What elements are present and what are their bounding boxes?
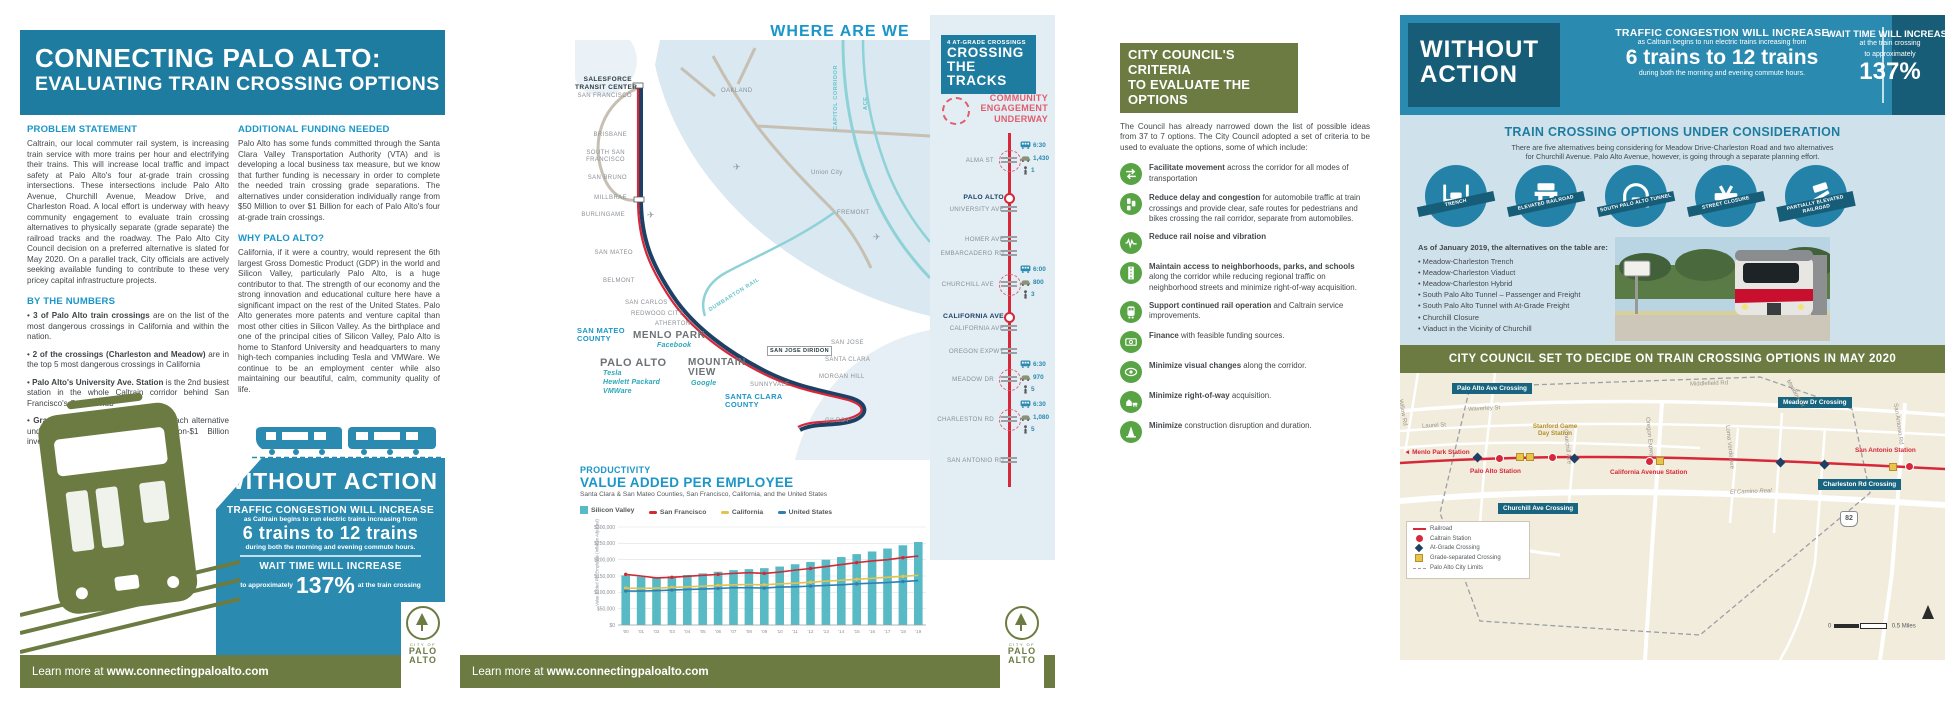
highway-82-shield: 82 xyxy=(1840,511,1858,527)
crossing-oregon-expwy: OREGON EXPWY xyxy=(934,348,1004,355)
city-logo: CITY OF PALO ALTO xyxy=(1000,602,1044,692)
svg-text:'00: '00 xyxy=(623,629,629,634)
map-label-facebook: Facebook xyxy=(657,342,691,349)
alternatives-intro: As of January 2019, the alternatives on … xyxy=(1418,243,1618,252)
separated-marker xyxy=(1526,453,1534,461)
airport-icon: ✈ xyxy=(873,232,881,243)
chart-ylabel: Value Added Per Employee (Inflation Adju… xyxy=(595,508,600,618)
svg-text:'16: '16 xyxy=(869,629,875,634)
option-partially-elevated-railroad: PARTIALLY ELEVATED RAILROAD xyxy=(1785,165,1847,227)
at-grade-circle xyxy=(999,409,1021,431)
alternative-item: South Palo Alto Tunnel with At-Grade Fre… xyxy=(1418,300,1618,311)
chart-legend: Silicon Valley San Francisco California … xyxy=(580,501,932,519)
criteria-item: Finance with feasible funding sources. xyxy=(1120,331,1378,353)
car-icon xyxy=(1020,279,1031,286)
separated-marker xyxy=(1001,457,1017,463)
train-icon xyxy=(1020,141,1031,149)
station-marker xyxy=(1004,312,1015,323)
criteria-item: Minimize visual changes along the corrid… xyxy=(1120,361,1378,383)
map-label-san-carlos: SAN CARLOS xyxy=(625,300,668,306)
criteria-item: Maintain access to neighborhoods, parks,… xyxy=(1120,262,1378,293)
map-label-south-sf: SOUTH SAN xyxy=(575,150,625,156)
option-trench: TRENCH xyxy=(1425,165,1487,227)
traffic-icon xyxy=(1120,193,1142,215)
svg-text:'13: '13 xyxy=(823,629,829,634)
page-middle: WHERE ARE WE Caltrain BART High Speed Ra… xyxy=(460,15,1055,688)
north-arrow-icon xyxy=(1922,605,1934,619)
map-label-capitol-corridor: CAPITOL CORRIDOR xyxy=(833,65,839,130)
wait-percentage: 137% xyxy=(296,572,355,599)
palo-alto-ave-crossing-label: Palo Alto Ave Crossing xyxy=(1452,383,1532,394)
svg-text:'04: '04 xyxy=(684,629,690,634)
at-grade-circle xyxy=(999,369,1021,391)
noise-icon xyxy=(1120,232,1142,254)
page-right: CITY COUNCIL'S CRITERIA TO EVALUATE THE … xyxy=(1075,15,1945,688)
separated-marker xyxy=(1001,206,1017,212)
separated-marker xyxy=(1001,348,1017,354)
stat-peds: 5 xyxy=(1022,385,1035,394)
footer-bar: Learn more at www.connectingpaloalto.com xyxy=(460,655,1055,688)
right-of-way-icon xyxy=(1120,391,1142,413)
legend-at-grade: At-Grade Crossing xyxy=(1412,545,1524,551)
stat-time: 6:30 xyxy=(1020,141,1046,149)
stat-time: 6:30 xyxy=(1020,400,1046,408)
svg-text:'03: '03 xyxy=(669,629,675,634)
criteria-header: CITY COUNCIL'S CRITERIA TO EVALUATE THE … xyxy=(1120,43,1298,113)
chart-legend-san-francisco: San Francisco xyxy=(649,509,706,516)
crossing-homer-ave: HOMER AVE xyxy=(934,236,1004,243)
svg-text:'08: '08 xyxy=(746,629,752,634)
alternative-item: Viaduct in the Vicinity of Churchill xyxy=(1418,323,1618,334)
map-label-hewlett-packard: Hewlett Packard xyxy=(603,379,660,386)
map-legend: Railroad Caltrain Station At-Grade Cross… xyxy=(1406,521,1530,579)
by-the-numbers-heading: BY THE NUMBERS xyxy=(27,296,229,307)
without-action-box: WITHOUT ACTION xyxy=(1408,23,1560,107)
map-label-union-city: Union City xyxy=(811,170,843,176)
map-label-menlo-park: MENLO PARK xyxy=(633,330,705,341)
chart-legend-california: California xyxy=(721,509,763,516)
page-left: CONNECTING PALO ALTO: EVALUATING TRAIN C… xyxy=(20,30,445,688)
option-elevated-railroad: ELEVATED RAILROAD xyxy=(1515,165,1577,227)
map-label-palo-alto: PALO ALTO xyxy=(600,357,667,369)
numbers-bullet: 2 of the crossings (Charleston and Meado… xyxy=(27,350,229,371)
stat-peds: 5 xyxy=(1022,425,1035,434)
svg-text:'07: '07 xyxy=(731,629,737,634)
bay-area-map: ✈ ✈ ✈ SALESFORCE TRANSIT CENTER SAN FRAN… xyxy=(575,40,930,460)
svg-text:'12: '12 xyxy=(808,629,814,634)
separated-marker xyxy=(1656,457,1664,465)
map-label-brisbane: BRISBANE xyxy=(575,132,627,138)
rail-line xyxy=(1008,133,1011,487)
train-icon xyxy=(1020,265,1031,273)
option-street-closure: STREET CLOSURE xyxy=(1695,165,1757,227)
divider xyxy=(240,499,421,501)
map-label-san-jose: SAN JOSE xyxy=(831,340,864,346)
svg-text:'10: '10 xyxy=(777,629,783,634)
crossing-meadow-dr: MEADOW DR xyxy=(934,376,994,383)
pedestrian-icon xyxy=(1022,166,1029,175)
car-icon xyxy=(1020,155,1031,162)
map-label-millbrae: MILLBRAE xyxy=(575,195,627,201)
separated-marker xyxy=(1889,463,1897,471)
options-section: TRAIN CROSSING OPTIONS UNDER CONSIDERATI… xyxy=(1400,115,1945,345)
svg-text:'14: '14 xyxy=(838,629,844,634)
map-label-san-bruno: SAN BRUNO xyxy=(575,175,627,181)
legend-grade-separated: Grade-separated Crossing xyxy=(1412,554,1524,562)
criteria-item: Reduce delay and congestion for automobi… xyxy=(1120,193,1378,224)
svg-text:$50,000: $50,000 xyxy=(597,606,615,612)
without-action-band: WITHOUT ACTION TRAFFIC CONGESTION WILL I… xyxy=(1400,15,1945,115)
page-subtitle: EVALUATING TRAIN CROSSING OPTIONS xyxy=(35,73,445,96)
alternative-item: Meadow-Charleston Viaduct xyxy=(1418,267,1618,278)
map-label-google: Google xyxy=(691,380,716,387)
caltrain-photo xyxy=(1615,237,1830,341)
map-label-vmware: VMWare xyxy=(603,388,632,395)
alternative-item: South Palo Alto Tunnel – Passenger and F… xyxy=(1418,289,1618,300)
decision-banner: CITY COUNCIL SET TO DECIDE ON TRAIN CROS… xyxy=(1400,345,1945,373)
crossing-tracks-panel: 4 AT-GRADE CROSSINGS CROSSING THE TRACKS… xyxy=(930,15,1055,560)
car-icon xyxy=(1020,414,1031,421)
legend-railroad: Railroad xyxy=(1412,526,1524,532)
city-logo: CITY OF PALO ALTO xyxy=(401,602,445,692)
wait-pre: to approximately xyxy=(240,582,293,589)
svg-text:'05: '05 xyxy=(700,629,706,634)
wait-post: at the train crossing xyxy=(358,582,421,589)
additional-funding-heading: ADDITIONAL FUNDING NEEDED xyxy=(238,124,440,135)
stat-cars: 970 xyxy=(1020,374,1044,381)
airport-icon: ✈ xyxy=(733,162,741,173)
title-banner: CONNECTING PALO ALTO: EVALUATING TRAIN C… xyxy=(20,30,445,115)
chart-title: VALUE ADDED PER EMPLOYEE xyxy=(580,475,932,490)
criteria-item: Reduce rail noise and vibration xyxy=(1120,232,1378,254)
street-laurel: Laurel St xyxy=(1422,422,1446,429)
svg-text:'15: '15 xyxy=(854,629,860,634)
map-label-san-francisco: SAN FRANCISCO xyxy=(575,93,632,99)
criteria-item: Minimize construction disruption and dur… xyxy=(1120,421,1378,443)
station-marker-palo-alto xyxy=(1495,454,1504,463)
map-label-santa-clara: SANTA CLARA xyxy=(825,357,870,363)
criteria-intro: The Council has already narrowed down th… xyxy=(1120,122,1370,154)
why-palo-alto-heading: WHY PALO ALTO? xyxy=(238,233,440,244)
construction-icon xyxy=(1120,421,1142,443)
pedestrian-icon xyxy=(1022,425,1029,434)
rail-icon xyxy=(1120,301,1142,323)
station-palo-alto: PALO ALTO xyxy=(934,194,1004,201)
pedestrian-icon xyxy=(1022,385,1029,394)
palo-alto-station-label: Palo Alto Station xyxy=(1470,468,1521,475)
option-south-palo-alto-tunnel: SOUTH PALO ALTO TUNNEL xyxy=(1605,165,1667,227)
alternative-item: Meadow-Charleston Hybrid xyxy=(1418,278,1618,289)
stat-peds: 3 xyxy=(1022,290,1035,299)
separated-marker xyxy=(1001,325,1017,331)
crossing-california-ave: CALIFORNIA AVE xyxy=(934,325,1004,332)
train-icon xyxy=(252,423,442,459)
crossings-map: Palo Alto Ave Crossing Churchill Ave Cro… xyxy=(1400,373,1945,660)
chart-legend-silicon-valley: Silicon Valley xyxy=(580,506,634,514)
road-icon xyxy=(1120,262,1142,284)
without-action-title: WITHOUT ACTION xyxy=(216,468,445,495)
map-label-salesforce2: TRANSIT CENTER xyxy=(575,84,632,91)
train-icon xyxy=(1020,360,1031,368)
criteria-item: Support continued rail operation and Cal… xyxy=(1120,301,1378,323)
svg-text:'19: '19 xyxy=(915,629,921,634)
svg-text:'01: '01 xyxy=(638,629,644,634)
city-logo-icon xyxy=(406,606,440,640)
station-california-ave: CALIFORNIA AVE xyxy=(934,313,1004,320)
stat-time: 6:00 xyxy=(1020,265,1046,273)
separated-marker xyxy=(1001,250,1017,256)
eye-icon xyxy=(1120,361,1142,383)
map-label-san-jose-diridon: SAN JOSE DIRIDON xyxy=(767,346,832,356)
map-label-oakland: OAKLAND xyxy=(721,88,752,94)
chart-plot: $0$50,000$100,000$150,000$200,000$250,00… xyxy=(580,521,930,647)
at-grade-circle xyxy=(999,274,1021,296)
map-label-belmont: BELMONT xyxy=(603,278,635,284)
map-title: WHERE ARE WE xyxy=(760,23,920,41)
movement-icon xyxy=(1120,163,1142,185)
city-logo-icon xyxy=(1005,606,1039,640)
legend-city-limits: Palo Alto City Limits xyxy=(1412,565,1524,571)
wait-heading: WAIT TIME WILL INCREASE xyxy=(216,561,445,572)
footer-text: Learn more at www.connectingpaloalto.com xyxy=(460,666,709,678)
map-label-mountain-view2: VIEW xyxy=(688,367,716,378)
crossing-embarcadero-rd: EMBARCADERO RD xyxy=(934,250,1004,257)
station-marker-san-antonio xyxy=(1905,462,1914,471)
map-label-san-mateo-county2: COUNTY xyxy=(577,334,611,343)
map-label-morgan-hill: MORGAN HILL xyxy=(819,374,865,380)
svg-text:'06: '06 xyxy=(715,629,721,634)
separated-marker xyxy=(1001,236,1017,242)
menlo-park-station-label: ◄ Menlo Park Station xyxy=(1404,449,1470,456)
at-grade-circle xyxy=(999,150,1021,172)
station-marker-stanford xyxy=(1548,453,1557,462)
map-label-redwood-city: REDWOOD CITY xyxy=(631,311,683,317)
airport-icon: ✈ xyxy=(647,210,655,221)
station-marker xyxy=(1004,193,1015,204)
trains-stat: 6 trains to 12 trains xyxy=(216,523,445,544)
crossing-san-antonio-rd: SAN ANTONIO RD xyxy=(934,457,1004,464)
stanford-station-label: Stanford GameDay Station xyxy=(1520,423,1590,437)
svg-text:'18: '18 xyxy=(900,629,906,634)
divider xyxy=(240,555,421,557)
map-label-sunnyvale: SUNNYVALE xyxy=(750,382,790,388)
scale-bar: 0 0.5 Miles xyxy=(1828,623,1916,630)
svg-text:'02: '02 xyxy=(654,629,660,634)
map-label-santa-clara-county2: COUNTY xyxy=(725,400,759,409)
criteria-item: Facilitate movement across the corridor … xyxy=(1120,163,1378,185)
map-label-burlingame: BURLINGAME xyxy=(575,212,625,218)
california-ave-station-label: California Avenue Station xyxy=(1610,469,1687,476)
website-link[interactable]: www.connectingpaloalto.com xyxy=(107,666,269,678)
map-label-san-mateo: SAN MATEO xyxy=(575,250,633,256)
additional-funding-body: Palo Alto has some funds committed throu… xyxy=(238,139,440,223)
stat-cars: 1,430 xyxy=(1020,155,1049,162)
page-title: CONNECTING PALO ALTO: xyxy=(35,44,445,73)
wait-percentage: 137% xyxy=(1820,58,1956,86)
stat-cars: 800 xyxy=(1020,279,1044,286)
chart-subtitle: Santa Clara & San Mateo Counties, San Fr… xyxy=(580,491,932,498)
train-icon xyxy=(1020,400,1031,408)
chart-legend-united-states: United States xyxy=(778,509,832,516)
svg-text:$0: $0 xyxy=(609,623,615,629)
station-marker-california-ave xyxy=(1645,457,1654,466)
legend-caltrain-station: Caltrain Station xyxy=(1412,535,1524,542)
charleston-rd-crossing-label: Charleston Rd Crossing xyxy=(1818,479,1901,490)
map-label-gilroy: GILROY xyxy=(825,418,850,424)
car-icon xyxy=(1020,374,1031,381)
options-heading: TRAIN CROSSING OPTIONS UNDER CONSIDERATI… xyxy=(1400,125,1945,139)
stat-cars: 1,080 xyxy=(1020,414,1049,421)
community-engagement-label: COMMUNITY ENGAGEMENT UNDERWAY xyxy=(960,93,1048,124)
finance-icon xyxy=(1120,331,1142,353)
san-antonio-station-label: San Antonio Station xyxy=(1855,447,1916,454)
map-label-atherton: ATHERTON xyxy=(655,321,691,327)
wait-block: WAIT TIME WILL INCREASE at the train cro… xyxy=(1820,29,1956,86)
map-label-tesla: Tesla xyxy=(603,370,622,377)
commute-sub: during both the morning and evening comm… xyxy=(216,544,445,551)
crossing-university-ave: UNIVERSITY AVE xyxy=(934,206,1004,213)
map-label-ace: ACE xyxy=(863,97,869,110)
productivity-chart: PRODUCTIVITY VALUE ADDED PER EMPLOYEE Sa… xyxy=(580,465,932,652)
chart-kicker: PRODUCTIVITY xyxy=(580,465,932,475)
congestion-heading: TRAFFIC CONGESTION WILL INCREASE xyxy=(216,505,445,516)
meadow-dr-crossing-label: Meadow Dr Crossing xyxy=(1778,397,1852,408)
crossing-tracks-header: 4 AT-GRADE CROSSINGS CROSSING THE TRACKS xyxy=(941,35,1036,94)
map-label-fremont: FREMONT xyxy=(837,210,869,216)
criteria-item: Minimize right-of-way acquisition. xyxy=(1120,391,1378,413)
svg-text:'09: '09 xyxy=(761,629,767,634)
why-palo-alto-body: California, if it were a country, would … xyxy=(238,248,440,395)
alternative-item: Churchill Closure xyxy=(1418,312,1618,323)
crossing-charleston-rd: CHARLESTON RD xyxy=(934,416,994,423)
crossing-churchill-ave: CHURCHILL AVE xyxy=(934,281,994,288)
map-label-salesforce: SALESFORCE xyxy=(575,76,632,83)
footer-bar: Learn more at www.connectingpaloalto.com xyxy=(20,655,445,688)
stat-time: 6:30 xyxy=(1020,360,1046,368)
stat-peds: 1 xyxy=(1022,166,1035,175)
crossing-alma-st: ALMA ST xyxy=(934,157,994,164)
map-label-south-sf2: FRANCISCO xyxy=(575,157,625,163)
website-link[interactable]: www.connectingpaloalto.com xyxy=(547,666,709,678)
footer-text: Learn more at www.connectingpaloalto.com xyxy=(20,666,269,678)
churchill-ave-crossing-label: Churchill Ave Crossing xyxy=(1498,503,1578,514)
svg-text:'11: '11 xyxy=(792,629,798,634)
svg-text:'17: '17 xyxy=(885,629,891,634)
separated-marker xyxy=(1516,453,1524,461)
congestion-sub: as Caltrain begins to run electric train… xyxy=(216,516,445,523)
problem-statement-body: Caltrain, our local commuter rail system… xyxy=(27,139,229,286)
problem-statement-heading: PROBLEM STATEMENT xyxy=(27,124,229,135)
pedestrian-icon xyxy=(1022,290,1029,299)
numbers-bullet: 3 of Palo Alto train crossings are on th… xyxy=(27,311,229,343)
train-illustration-green xyxy=(20,390,240,655)
alternative-item: Meadow-Charleston Trench xyxy=(1418,256,1618,267)
